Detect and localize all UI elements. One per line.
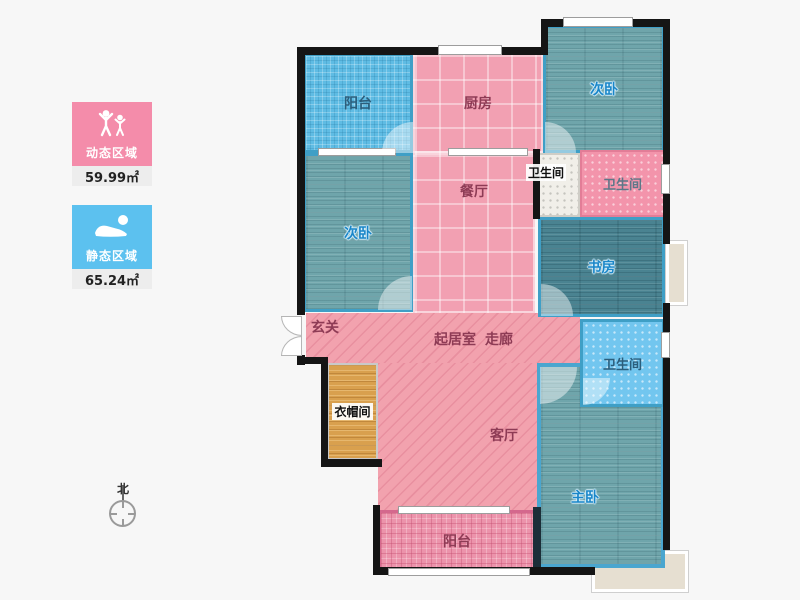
window [563, 17, 633, 27]
wall-segment [541, 19, 548, 55]
room-kitchen-label: 厨房 [464, 93, 492, 113]
room-cloakroom-label: 衣帽间 [332, 403, 372, 420]
room-dining-label: 餐厅 [460, 181, 488, 201]
window [438, 45, 502, 55]
room-living[interactable]: 客厅 [378, 363, 537, 513]
room-bedroom-left-label: 次卧 [344, 223, 372, 243]
wall-segment [297, 47, 546, 55]
wall-segment [321, 459, 382, 467]
window [398, 506, 510, 514]
window [661, 332, 670, 358]
room-bath-pink-label: 卫生间 [603, 174, 642, 193]
bay-window-right [666, 241, 687, 305]
floor-plan: 厨房 餐厅 玄关 起居室 走廊 客厅 阳台 衣帽间 阳台 次卧 [0, 0, 800, 600]
room-study-label: 书房 [588, 257, 616, 277]
room-living-label: 客厅 [490, 425, 518, 445]
wall-segment [373, 505, 380, 575]
window [661, 164, 670, 194]
corridor-hall-label: 走廊 [485, 329, 513, 349]
floorplan-canvas: 动态区域 59.99㎡ 静态区域 65.24㎡ 北 [0, 0, 800, 600]
room-bedroom-top-right-label: 次卧 [590, 79, 618, 99]
entry-door-swing [281, 316, 302, 336]
room-bath-white[interactable] [538, 153, 580, 217]
corridor-living-label: 起居室 [434, 329, 476, 349]
entry-door-swing [281, 336, 302, 356]
wall-segment [663, 19, 670, 244]
room-kitchen[interactable]: 厨房 [413, 53, 543, 153]
window [448, 148, 528, 156]
room-corridor-labels: 起居室 走廊 [434, 329, 513, 349]
room-cloakroom[interactable]: 衣帽间 [327, 363, 378, 460]
wall-segment [533, 507, 541, 572]
window [388, 568, 530, 576]
room-bath-white-label: 卫生间 [526, 164, 566, 181]
room-balcony-bottom[interactable]: 阳台 [378, 510, 536, 572]
room-bath-blue-label: 卫生间 [603, 354, 642, 373]
room-master-label: 主卧 [571, 487, 599, 507]
wall-segment [533, 149, 540, 219]
room-corridor[interactable]: 玄关 起居室 走廊 [306, 313, 580, 363]
room-balcony-top-label: 阳台 [344, 93, 372, 113]
room-entry-label: 玄关 [311, 317, 339, 337]
room-dining[interactable]: 餐厅 [413, 153, 535, 313]
wall-segment [321, 357, 328, 467]
room-balcony-bottom-label: 阳台 [443, 531, 471, 551]
room-bath-pink[interactable]: 卫生间 [580, 150, 665, 217]
wall-segment [297, 47, 305, 315]
